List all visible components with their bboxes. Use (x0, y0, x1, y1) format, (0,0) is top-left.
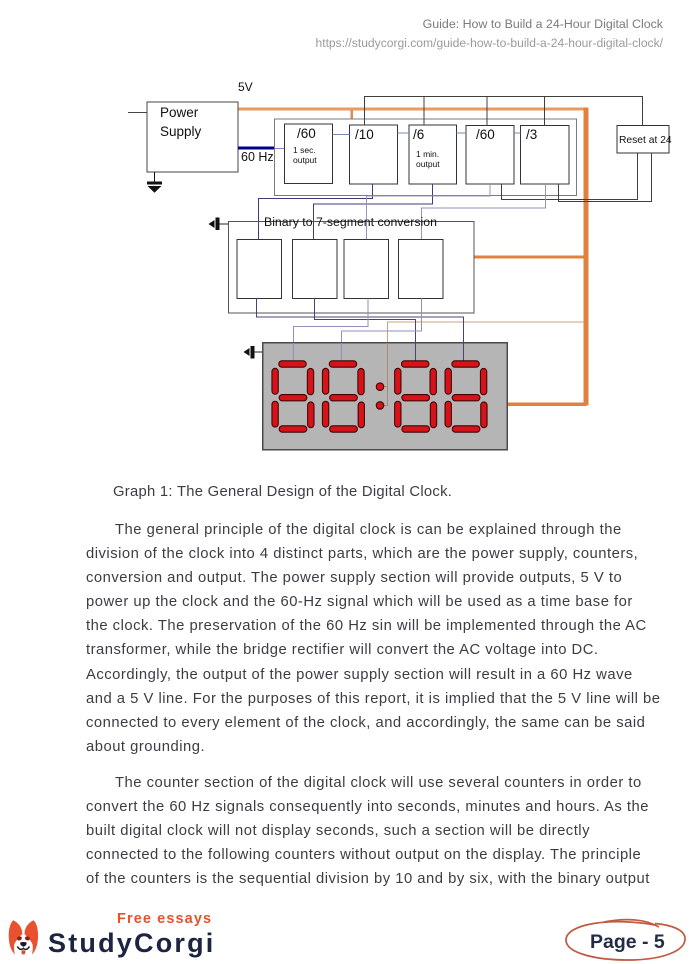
svg-text:1 sec.: 1 sec. (293, 145, 316, 155)
svg-text:Binary to 7-segment conversion: Binary to 7-segment conversion (264, 215, 437, 229)
svg-text:/10: /10 (355, 127, 374, 142)
svg-text:output: output (416, 159, 440, 169)
svg-text:/6: /6 (413, 127, 424, 142)
svg-text:/60: /60 (297, 126, 316, 141)
svg-text:Free essays: Free essays (117, 911, 212, 927)
svg-text:60 Hz: 60 Hz (241, 150, 274, 164)
svg-text:Power: Power (160, 105, 199, 120)
svg-text:5V: 5V (238, 80, 253, 94)
svg-text:1 min.: 1 min. (416, 149, 439, 159)
svg-text:/3: /3 (526, 127, 537, 142)
svg-text:Page - 5: Page - 5 (590, 931, 665, 953)
svg-text:output: output (293, 155, 317, 165)
svg-text:Reset at 24: Reset at 24 (619, 135, 672, 146)
svg-text:StudyCorgi: StudyCorgi (48, 928, 216, 958)
svg-text:/60: /60 (476, 127, 495, 142)
svg-text:Supply: Supply (160, 124, 202, 139)
